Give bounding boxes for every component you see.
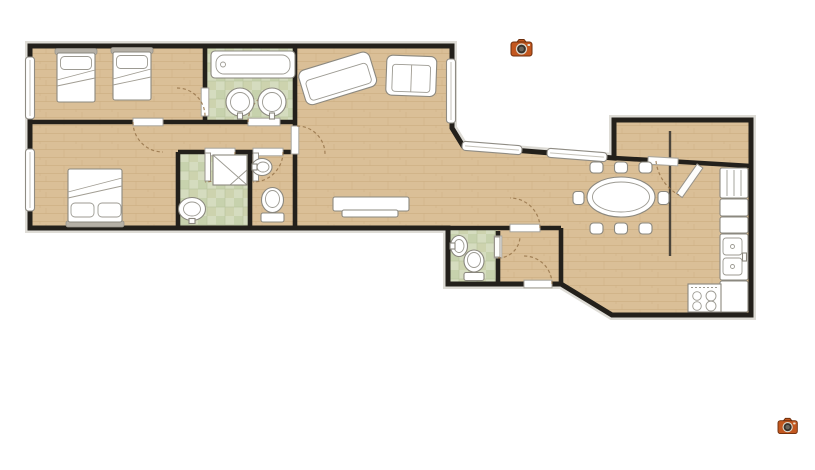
dining-chair <box>615 162 628 173</box>
floor-plan-screenshot <box>0 0 815 470</box>
sideboard <box>333 197 409 211</box>
single-bed-1 <box>57 53 95 102</box>
dining-table <box>587 177 655 217</box>
toilet <box>464 250 484 272</box>
door-sill-bathroom <box>248 118 280 126</box>
camera-hotspot-top[interactable] <box>511 40 532 57</box>
tv-unit <box>342 210 398 217</box>
toilet-tank <box>261 213 284 222</box>
camera-hotspot-bottom[interactable] <box>778 418 797 433</box>
kitchen-faucet <box>743 253 747 261</box>
dining-chair <box>658 192 669 205</box>
kitchen-cabinet <box>720 199 748 216</box>
single-bed-2 <box>113 52 151 100</box>
sink-tap <box>238 113 243 119</box>
door-sill-hall-bed <box>133 118 163 126</box>
dining-chair <box>590 162 603 173</box>
door-leaf-guest-wc <box>495 237 501 257</box>
pedestal-sink <box>179 198 206 221</box>
door-sill-dining <box>510 224 540 232</box>
dining-chair <box>639 162 652 173</box>
double-bed <box>68 169 122 222</box>
sink-tap <box>270 113 275 119</box>
dining-chair <box>573 192 584 205</box>
door-sill-bedroom1 <box>201 88 209 116</box>
dining-chair <box>590 223 603 234</box>
kitchen-counter <box>720 281 748 312</box>
door-sill-hall-exit <box>524 280 552 288</box>
toilet <box>262 188 284 213</box>
dining-chair <box>615 223 628 234</box>
door-leaf-shower-room <box>205 153 211 181</box>
sink-tap <box>450 243 455 249</box>
kitchen-cabinet <box>720 217 748 233</box>
dining-chair <box>639 223 652 234</box>
door-sill-living <box>291 126 299 154</box>
sink-tap <box>252 164 257 170</box>
sink-tap <box>189 219 195 224</box>
toilet-tank <box>464 273 484 281</box>
bedroom-double-furniture <box>66 169 124 227</box>
floor-plan-canvas <box>0 0 815 470</box>
